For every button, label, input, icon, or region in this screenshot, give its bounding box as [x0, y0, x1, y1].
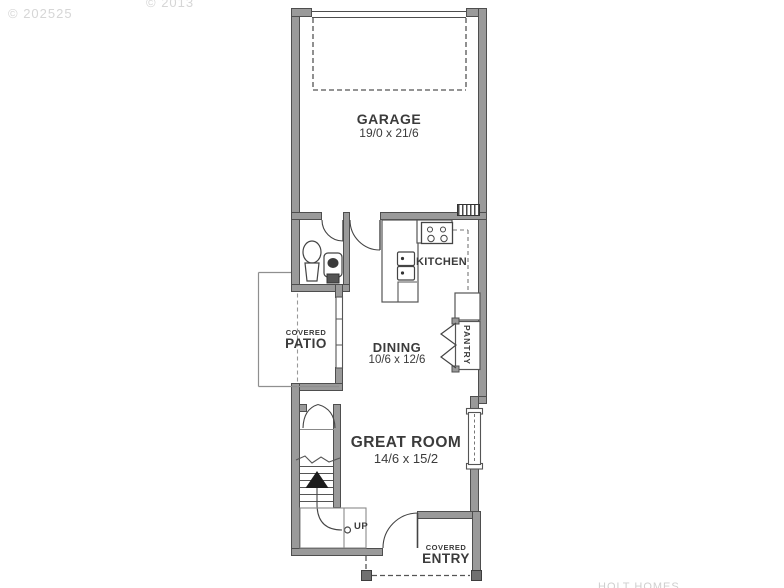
greatroom-window-icon	[467, 409, 483, 470]
garage-entry-door-arc	[350, 220, 380, 250]
stairs-break-line	[296, 456, 340, 463]
up-label: UP	[354, 521, 368, 532]
garage-dims: 19/0 x 21/6	[359, 126, 418, 140]
pantry-label: PANTRY	[462, 325, 472, 365]
pantry-bifold-doors-icon	[441, 323, 456, 368]
floor-plan: © 202525 © 2013 HOLT HOMES	[0, 0, 784, 588]
great-room-dims: 14/6 x 15/2	[374, 451, 438, 466]
garage-door-dashes	[313, 18, 466, 90]
entry-label: ENTRY	[422, 551, 470, 566]
pedestal-sink-icon	[303, 241, 321, 281]
stairs-start-marker	[345, 527, 351, 533]
kitchen-label: KITCHEN	[416, 256, 467, 268]
dining-dims: 10/6 x 12/6	[369, 354, 426, 366]
front-door-arc	[383, 513, 418, 548]
patio-slider-window	[336, 297, 343, 368]
dining-label: DINING	[373, 340, 422, 355]
bathroom-door-arc	[322, 220, 343, 241]
garage-label: GARAGE	[357, 111, 421, 127]
stove-icon	[422, 223, 453, 244]
fridge-icon	[455, 293, 480, 320]
patio-label: PATIO	[285, 336, 327, 351]
floorplan-drawing	[0, 0, 784, 588]
toilet-icon	[324, 253, 342, 283]
closet-door-arcs	[300, 405, 335, 430]
great-room-label: GREAT ROOM	[351, 434, 462, 452]
kitchen-sink-icon	[398, 252, 415, 280]
